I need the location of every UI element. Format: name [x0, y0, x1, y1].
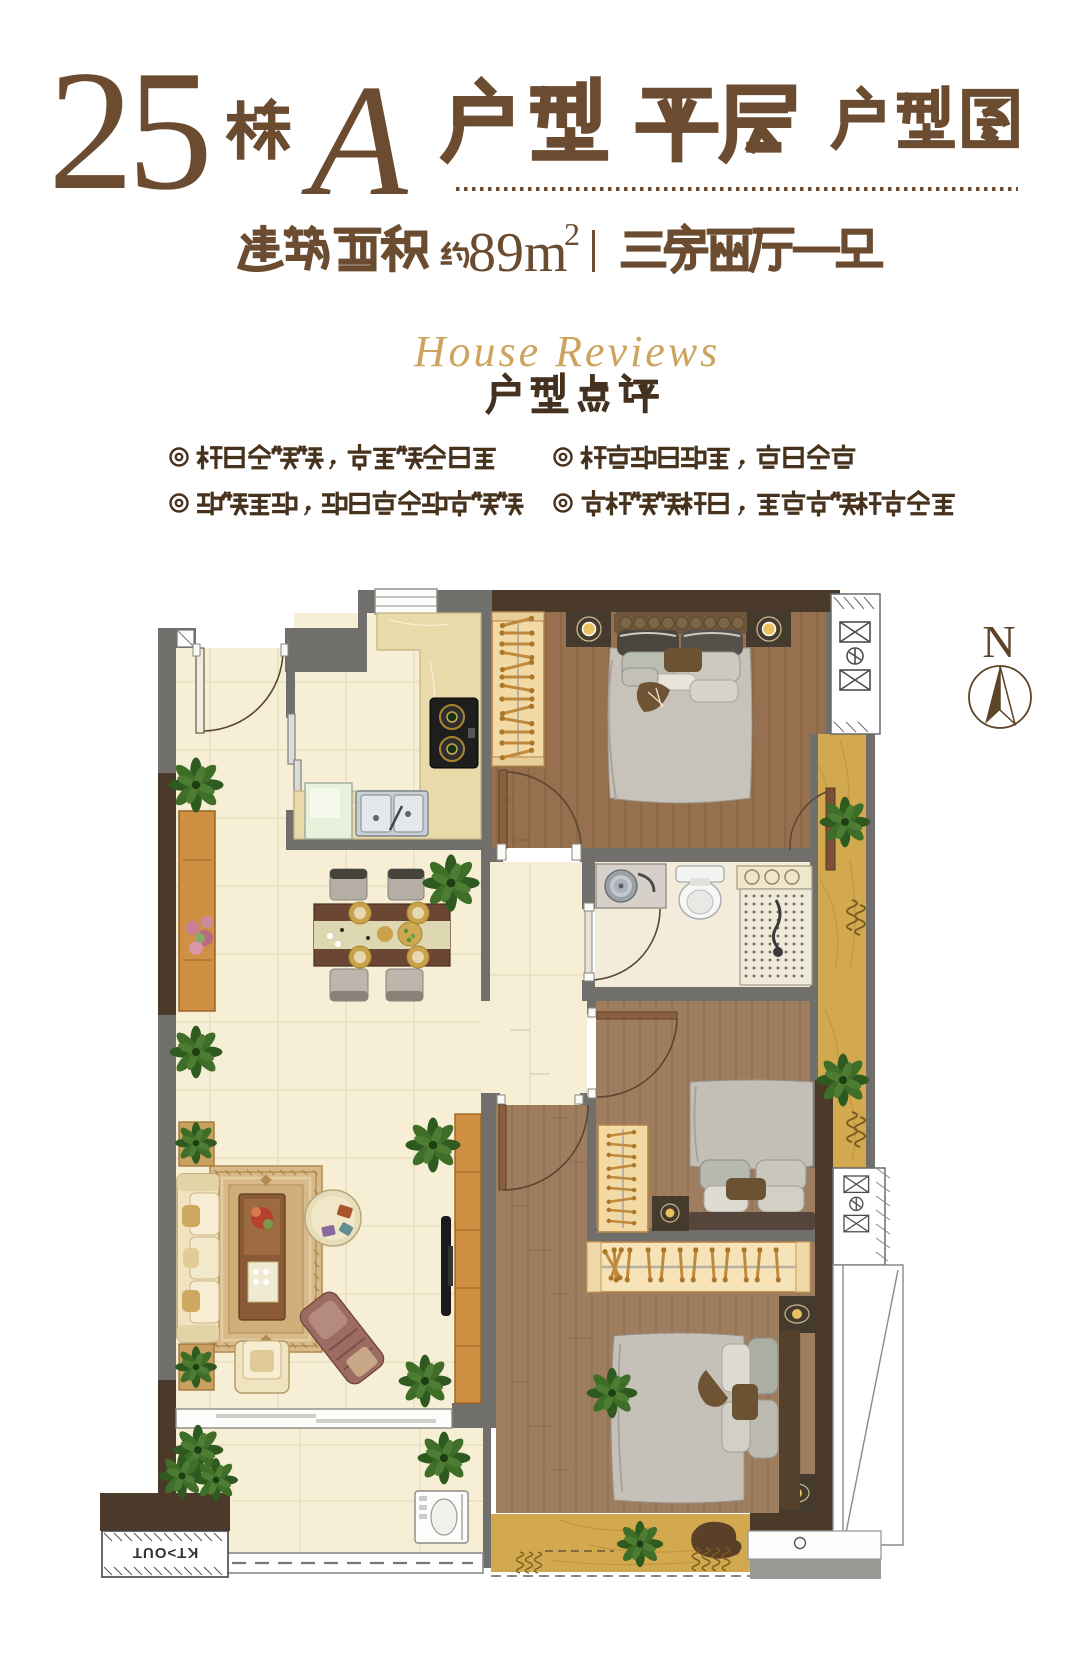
svg-text:KT>OUT: KT>OUT [132, 1544, 198, 1561]
svg-text:89m: 89m [468, 222, 568, 284]
svg-text:25: 25 [48, 36, 207, 226]
svg-text:N: N [982, 616, 1015, 667]
svg-text:A: A [301, 51, 409, 229]
svg-text:2: 2 [564, 216, 580, 252]
svg-text:House Reviews: House Reviews [413, 327, 721, 376]
